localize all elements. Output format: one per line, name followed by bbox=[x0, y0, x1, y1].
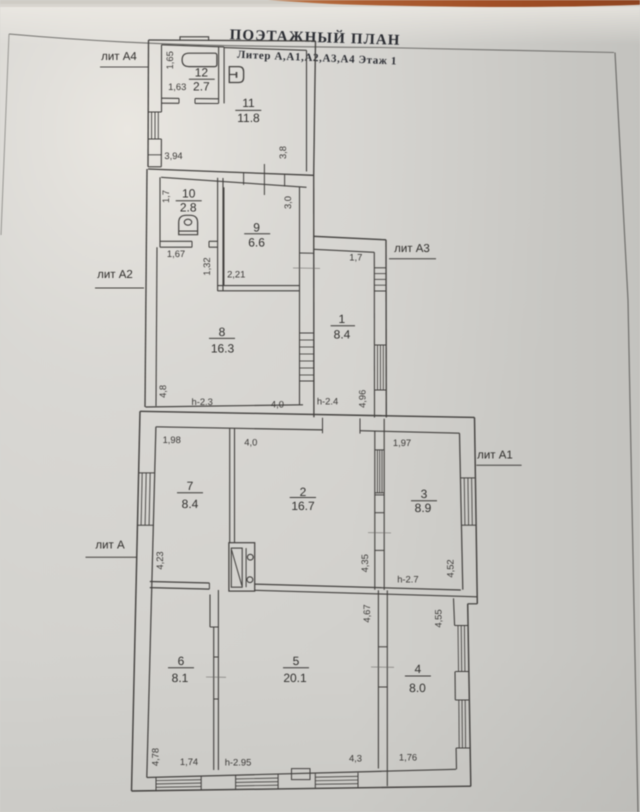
svg-text:1,32: 1,32 bbox=[201, 257, 212, 275]
svg-text:1: 1 bbox=[338, 312, 345, 326]
svg-text:1,74: 1,74 bbox=[180, 756, 198, 767]
svg-text:h-2.7: h-2.7 bbox=[397, 574, 418, 585]
svg-text:7: 7 bbox=[187, 479, 194, 493]
svg-text:1,7: 1,7 bbox=[160, 190, 171, 203]
svg-text:6.6: 6.6 bbox=[248, 236, 265, 250]
svg-text:1,63: 1,63 bbox=[168, 81, 186, 92]
svg-text:8: 8 bbox=[219, 325, 226, 339]
svg-text:9: 9 bbox=[253, 221, 260, 235]
svg-text:1,7: 1,7 bbox=[349, 251, 362, 262]
svg-text:5: 5 bbox=[293, 654, 300, 668]
svg-text:лит А: лит А bbox=[95, 540, 125, 552]
svg-text:1,98: 1,98 bbox=[163, 434, 181, 445]
svg-text:12: 12 bbox=[195, 66, 209, 80]
svg-text:2,21: 2,21 bbox=[227, 269, 245, 280]
svg-text:4,96: 4,96 bbox=[357, 390, 368, 408]
svg-text:лит А2: лит А2 bbox=[97, 269, 133, 281]
svg-text:8.9: 8.9 bbox=[415, 501, 432, 515]
svg-text:4,52: 4,52 bbox=[445, 559, 456, 577]
svg-text:8.4: 8.4 bbox=[182, 497, 199, 511]
svg-text:2: 2 bbox=[300, 485, 307, 499]
svg-text:лит А1: лит А1 bbox=[477, 450, 513, 462]
svg-text:4,55: 4,55 bbox=[433, 609, 444, 627]
svg-text:3,94: 3,94 bbox=[164, 150, 182, 161]
svg-text:1,65: 1,65 bbox=[164, 51, 175, 69]
svg-text:h-2.4: h-2.4 bbox=[317, 395, 338, 406]
svg-text:4: 4 bbox=[415, 662, 422, 676]
svg-text:4,67: 4,67 bbox=[361, 604, 372, 622]
svg-text:1,97: 1,97 bbox=[393, 437, 411, 448]
svg-text:8.1: 8.1 bbox=[172, 671, 189, 685]
svg-text:2.7: 2.7 bbox=[193, 80, 210, 94]
svg-text:20.1: 20.1 bbox=[283, 671, 307, 685]
svg-text:1,67: 1,67 bbox=[167, 248, 185, 259]
svg-text:8.0: 8.0 bbox=[409, 681, 426, 695]
svg-text:лит А3: лит А3 bbox=[394, 243, 430, 255]
svg-text:6: 6 bbox=[178, 654, 185, 668]
svg-text:11: 11 bbox=[242, 96, 255, 110]
svg-text:4,0: 4,0 bbox=[271, 399, 284, 410]
svg-text:11.8: 11.8 bbox=[237, 111, 260, 125]
svg-text:4,3: 4,3 bbox=[349, 753, 362, 764]
svg-text:16.7: 16.7 bbox=[291, 499, 315, 513]
svg-text:4,0: 4,0 bbox=[244, 436, 257, 447]
svg-text:4,8: 4,8 bbox=[157, 385, 168, 398]
svg-text:16.3: 16.3 bbox=[211, 341, 235, 355]
svg-text:3: 3 bbox=[421, 487, 428, 501]
svg-text:10: 10 bbox=[182, 187, 196, 201]
svg-text:h-2.3: h-2.3 bbox=[192, 396, 213, 407]
svg-text:3,8: 3,8 bbox=[277, 146, 288, 159]
svg-text:4,23: 4,23 bbox=[154, 551, 165, 569]
svg-text:1,76: 1,76 bbox=[399, 752, 417, 763]
svg-text:3,0: 3,0 bbox=[282, 196, 293, 209]
svg-text:8.4: 8.4 bbox=[334, 327, 351, 341]
svg-text:лит А4: лит А4 bbox=[101, 51, 137, 63]
svg-text:h-2.95: h-2.95 bbox=[225, 757, 252, 768]
svg-text:4,35: 4,35 bbox=[359, 554, 370, 572]
svg-text:4,78: 4,78 bbox=[149, 748, 160, 766]
svg-text:2.8: 2.8 bbox=[180, 200, 197, 214]
